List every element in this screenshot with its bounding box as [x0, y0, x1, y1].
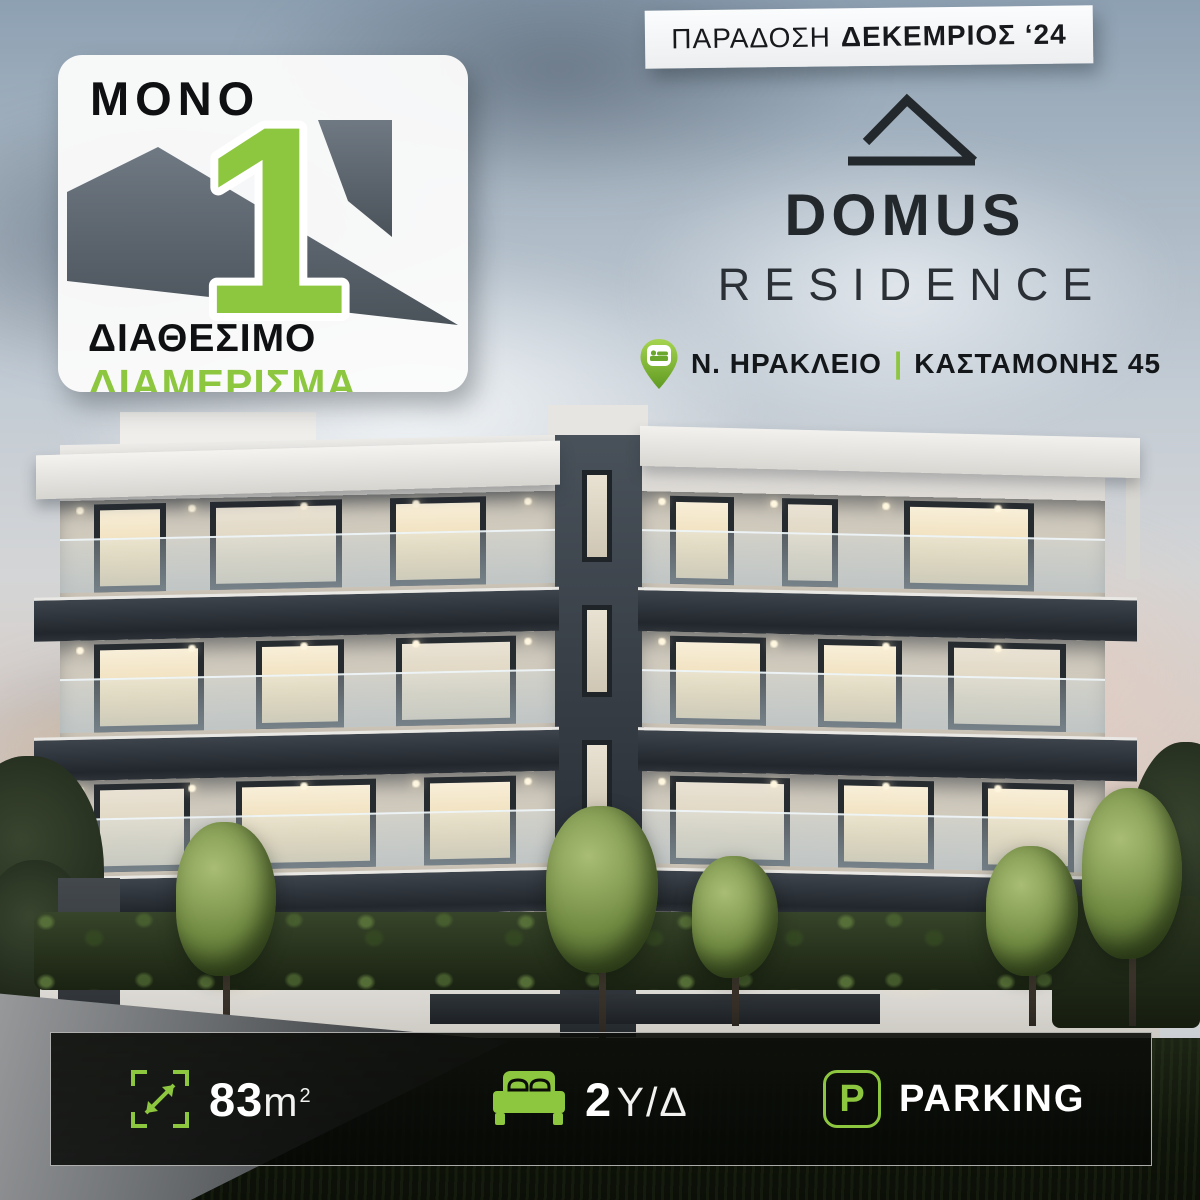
bedrooms-unit: Υ/Δ	[617, 1079, 689, 1125]
location-line: Ν. ΗΡΑΚΛΕΙΟ | ΚΑΣΤΑΜΟΝΗΣ 45	[600, 338, 1200, 390]
logo: DOMUS RESIDENCE	[640, 92, 1170, 311]
parking-label: PARKING	[899, 1078, 1085, 1121]
tree	[1082, 788, 1182, 1026]
feature-parking: P PARKING	[823, 1033, 1085, 1165]
parking-icon: P	[823, 1070, 881, 1128]
logo-name: DOMUS	[640, 182, 1170, 249]
expand-icon	[129, 1068, 191, 1130]
badge-top-word: MONO	[90, 71, 260, 126]
tree	[986, 846, 1078, 1026]
roof-outline-icon	[830, 92, 980, 166]
location-area: Ν. ΗΡΑΚΛΕΙΟ	[691, 348, 882, 380]
area-superscript: 2	[299, 1085, 310, 1107]
area-unit: m	[263, 1079, 297, 1125]
delivery-badge: ΠΑΡΑΔΟΣΗ ΔΕΚΕΜΡΙΟΣ ‘24	[645, 5, 1094, 68]
location-separator: |	[894, 347, 902, 381]
delivery-prefix: ΠΑΡΑΔΟΣΗ	[671, 21, 831, 55]
logo-subtitle: RESIDENCE	[640, 259, 1184, 311]
feature-bar: 83m2 2 Υ/Δ P PARKING	[50, 1032, 1152, 1166]
bed-icon	[491, 1071, 567, 1127]
tree	[546, 806, 658, 1038]
badge-line2: ΔΙΑΜΕΡΙΣΜΑ	[88, 361, 357, 392]
feature-bedrooms: 2 Υ/Δ	[491, 1033, 689, 1165]
feature-area: 83m2	[129, 1033, 311, 1165]
badge-line1: ΔΙΑΘΕΣΙΜΟ	[88, 317, 316, 361]
delivery-date: ΔΕΚΕΜΡΙΟΣ ‘24	[841, 19, 1067, 54]
ad-poster: 83m2 2 Υ/Δ P PARKING ΠΑΡΑΔΟΣΗ ΔΕΚΕ	[0, 0, 1200, 1200]
availability-badge: 1 MONO ΔΙΑΘΕΣΙΜΟ ΔΙΑΜΕΡΙΣΜΑ	[58, 55, 468, 392]
tree	[692, 856, 778, 1026]
location-pin-bed-icon	[639, 338, 679, 390]
bedrooms-value: 2	[585, 1073, 612, 1126]
location-street: ΚΑΣΤΑΜΟΝΗΣ 45	[914, 348, 1161, 380]
tree	[176, 822, 276, 1036]
area-value: 83	[209, 1073, 263, 1126]
